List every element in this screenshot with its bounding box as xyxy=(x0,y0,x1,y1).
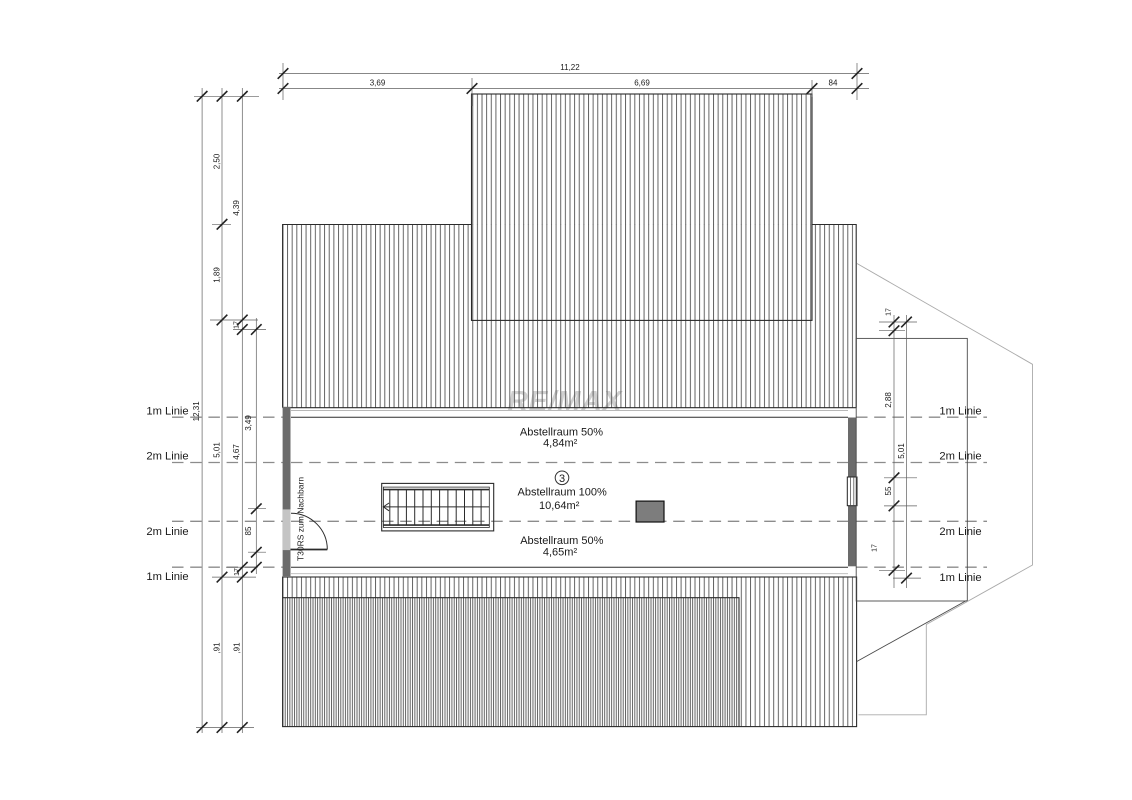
svg-text:Abstellraum 100%: Abstellraum 100% xyxy=(518,486,607,498)
svg-text:,91: ,91 xyxy=(233,642,242,654)
svg-text:2m Linie: 2m Linie xyxy=(939,526,981,538)
svg-text:2,88: 2,88 xyxy=(884,392,893,408)
svg-text:11,22: 11,22 xyxy=(560,63,580,72)
svg-text:3,69: 3,69 xyxy=(370,78,386,87)
svg-text:17: 17 xyxy=(234,321,241,329)
svg-text:1m Linie: 1m Linie xyxy=(146,405,188,417)
svg-text:5,01: 5,01 xyxy=(897,443,906,459)
svg-text:3: 3 xyxy=(559,473,565,485)
svg-text:1,89: 1,89 xyxy=(212,267,221,283)
svg-text:85: 85 xyxy=(244,526,253,535)
svg-text:17: 17 xyxy=(872,544,879,552)
svg-text:1m Linie: 1m Linie xyxy=(939,572,981,584)
svg-text:T30RS zum Nachbarn: T30RS zum Nachbarn xyxy=(296,477,306,561)
svg-text:2,50: 2,50 xyxy=(212,153,221,169)
svg-text:84: 84 xyxy=(829,78,838,87)
svg-text:55: 55 xyxy=(884,486,893,495)
svg-text:1m Linie: 1m Linie xyxy=(939,406,981,418)
svg-text:2m Linie: 2m Linie xyxy=(146,526,188,538)
svg-text:1m Linie: 1m Linie xyxy=(146,571,188,583)
svg-text:17: 17 xyxy=(886,308,893,316)
svg-text:Abstellraum 50%: Abstellraum 50% xyxy=(520,535,603,547)
svg-text:4,39: 4,39 xyxy=(232,200,241,216)
svg-text:17: 17 xyxy=(234,568,241,576)
svg-text:,91: ,91 xyxy=(213,642,222,654)
svg-text:4,67: 4,67 xyxy=(232,444,241,460)
svg-text:6,69: 6,69 xyxy=(634,78,650,87)
svg-text:2m Linie: 2m Linie xyxy=(146,450,188,462)
svg-text:4,65m²: 4,65m² xyxy=(543,547,578,559)
svg-text:4,84m²: 4,84m² xyxy=(543,438,578,450)
svg-text:12,31: 12,31 xyxy=(192,401,201,422)
svg-text:10,64m²: 10,64m² xyxy=(539,500,580,512)
svg-text:5,01: 5,01 xyxy=(212,442,221,458)
svg-text:2m Linie: 2m Linie xyxy=(939,451,981,463)
svg-text:3,49: 3,49 xyxy=(244,415,253,431)
